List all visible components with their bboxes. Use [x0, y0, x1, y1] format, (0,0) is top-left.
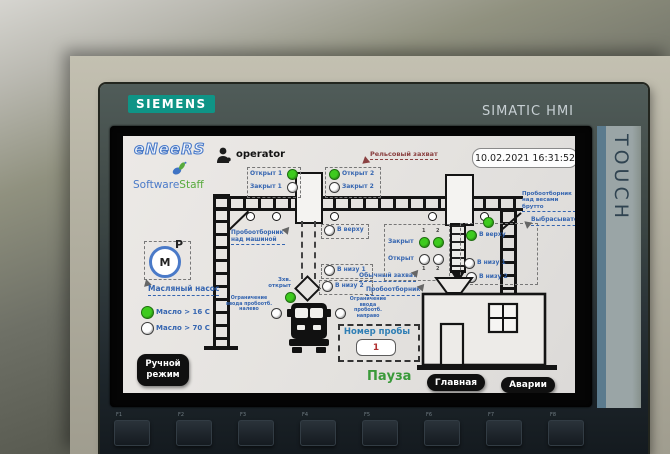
col2-label-top: 2 [436, 228, 439, 234]
f7-key[interactable] [486, 420, 522, 446]
sample-number-value[interactable]: 1 [356, 339, 396, 356]
f2-label: F2 [178, 412, 184, 418]
top-left-label: В верху [337, 227, 364, 234]
right-open-led-2 [433, 254, 444, 265]
softwarestaff-logo: SoftwareStaff [133, 179, 204, 191]
f2-key[interactable] [176, 420, 212, 446]
operator-icon [216, 147, 232, 164]
top-right-led [466, 230, 477, 241]
top-right-label: В верху [479, 232, 506, 239]
motor-p-label: P [175, 238, 183, 251]
photo-background: SIEMENS SIMATIC HMI eNeeRS SoftwareStaff… [0, 0, 670, 454]
softwarestaff-bird-icon [171, 161, 189, 177]
oil70-led [141, 322, 154, 335]
trolley-roller [330, 212, 339, 221]
closed2-label: Закрыт 2 [342, 184, 374, 191]
f8-key[interactable] [548, 420, 584, 446]
f3-label: F3 [240, 412, 246, 418]
bottom1-right-label: В низу 1 [477, 260, 506, 267]
f5-label: F5 [364, 412, 370, 418]
right-closed-label: Закрыт [388, 239, 414, 246]
bottom2-left-led [322, 281, 333, 292]
limit-left-label: Ограничение ввода пробоотб. налево [224, 296, 274, 313]
operator-name: operator [236, 149, 285, 160]
open2-led [329, 169, 340, 180]
open1-label: Открыт 1 [250, 171, 282, 178]
eneers-logo: eNeeRS [134, 140, 205, 158]
bottom2-left-label: В низу 2 [335, 283, 364, 290]
oil16-led [141, 306, 154, 319]
sampler-probe-1-tip [294, 275, 321, 302]
col2-label-bottom: 2 [436, 266, 439, 272]
f7-label: F7 [488, 412, 494, 418]
f8-label: F8 [550, 412, 556, 418]
right-closed-led-2 [433, 237, 444, 248]
right-open-led-1 [419, 254, 430, 265]
f5-key[interactable] [362, 420, 398, 446]
normal-grip-label: Обычный захват [359, 273, 416, 282]
softwarestaff-logo-staff: Staff [179, 179, 203, 191]
closed1-led [287, 182, 298, 193]
truck-icon [285, 301, 333, 354]
sampler-carriage-2 [445, 174, 474, 226]
alarms-button[interactable]: Аварии [501, 377, 555, 393]
datetime-display: 10.02.2021 16:31:52 [472, 148, 575, 168]
ejector-label: Выбрасыватель [531, 217, 575, 226]
grip-open-label: Зхв. открыт [265, 277, 291, 290]
sampler-label: Пробоотборник [366, 287, 420, 296]
open1-led [287, 169, 298, 180]
limit-right-label: Ограничение ввода пробоотб. направо [345, 297, 391, 319]
f1-label: F1 [116, 412, 122, 418]
rail-grip-label: Рельсовый захват [370, 151, 438, 160]
ejector-top-led [483, 217, 494, 228]
trolley-roller [272, 212, 281, 221]
rail-grip-arrow [360, 156, 371, 167]
f4-label: F4 [302, 412, 308, 418]
f6-key[interactable] [424, 420, 460, 446]
open2-label: Открыт 2 [342, 171, 374, 178]
softwarestaff-logo-software: Software [133, 179, 179, 191]
sampler-over-scales-label: Пробоотборник над весами брутто [522, 191, 575, 212]
top-left-led [324, 225, 335, 236]
hmi-panel: SIEMENS SIMATIC HMI eNeeRS SoftwareStaff… [100, 84, 648, 454]
f4-key[interactable] [300, 420, 336, 446]
sample-number-label: Номер пробы [342, 327, 412, 337]
sampler-probe-1-shaft [301, 221, 316, 279]
bottom1-right-led [464, 258, 475, 269]
limit-left-led [271, 308, 282, 319]
function-key-row: F1 F2 F3 F4 F5 F6 F7 F8 [114, 412, 614, 446]
oil-pump-label: Масляный насос [148, 285, 219, 296]
gantry-beam [213, 196, 523, 211]
trolley-roller [428, 212, 437, 221]
col1-label-top: 1 [422, 228, 425, 234]
main-button[interactable]: Главная [427, 374, 485, 391]
right-open-label: Открыт [388, 256, 414, 263]
building-drawing [417, 276, 557, 372]
pause-status: Пауза [367, 369, 411, 384]
simatic-hmi-label: SIMATIC HMI [482, 104, 574, 119]
sampler-over-car-label: Пробоотборник над машиной [231, 230, 285, 245]
closed2-led [329, 182, 340, 193]
right-closed-led-1 [419, 237, 430, 248]
hmi-screen: eNeeRS SoftwareStaff operator Рельсовый … [123, 136, 575, 393]
touch-strip: TOUCH [597, 126, 641, 408]
trolley-roller [246, 212, 255, 221]
f6-label: F6 [426, 412, 432, 418]
col1-label-bottom: 1 [422, 266, 425, 272]
closed1-label: Закрыт 1 [250, 184, 282, 191]
siemens-logo: SIEMENS [128, 95, 215, 113]
bottom1-left-led [324, 265, 335, 276]
oil16-label: Масло > 16 С [156, 308, 210, 316]
manual-mode-button[interactable]: Ручной режим [137, 354, 189, 386]
touch-label: TOUCH [610, 134, 632, 222]
oil70-label: Масло > 70 С [156, 324, 210, 332]
f1-key[interactable] [114, 420, 150, 446]
gantry-left-foot [204, 346, 238, 350]
f3-key[interactable] [238, 420, 274, 446]
gantry-left-leg [213, 194, 230, 348]
